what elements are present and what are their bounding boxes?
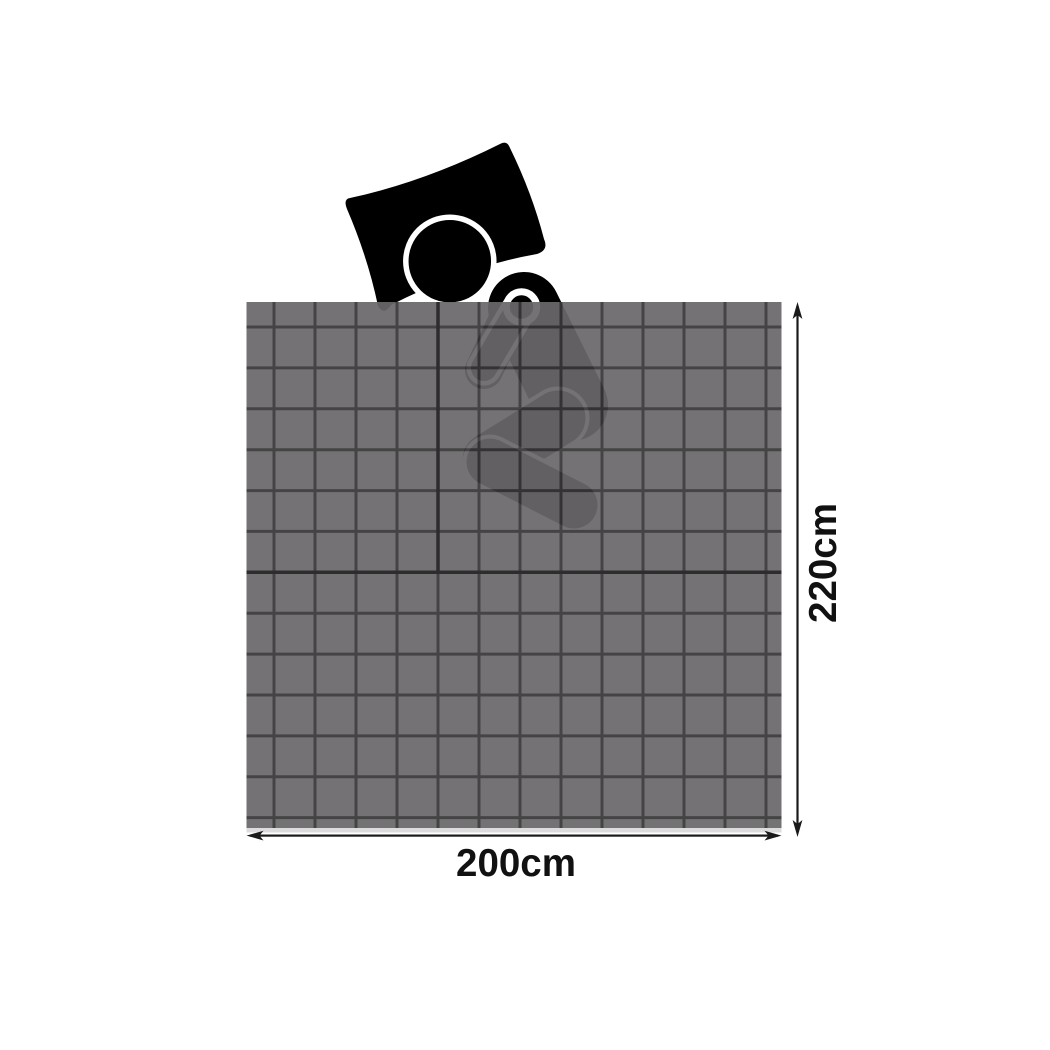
svg-text:220cm: 220cm [802, 503, 845, 623]
svg-text:200cm: 200cm [456, 842, 576, 885]
